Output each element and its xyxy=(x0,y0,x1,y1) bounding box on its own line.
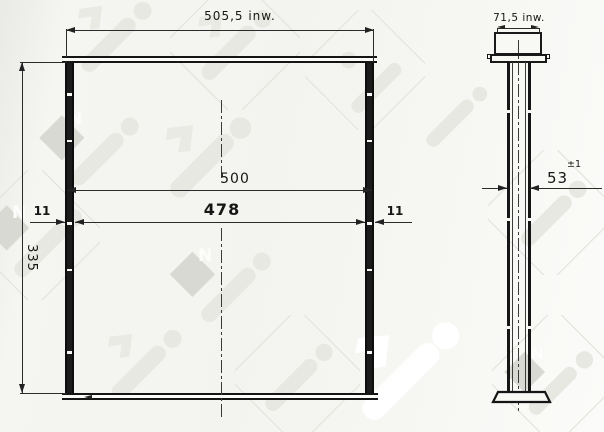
dimension-arrow xyxy=(530,185,539,191)
side-core-inner-line xyxy=(512,62,513,392)
front-right-side-plate xyxy=(365,57,374,400)
side-core-inner-line xyxy=(525,62,526,392)
svg-text:N: N xyxy=(530,344,544,363)
extension-line xyxy=(66,29,67,57)
dimension-arrow xyxy=(356,219,365,225)
nrf-watermark-tile xyxy=(395,55,515,175)
extension-line xyxy=(20,393,67,394)
dimension-label-53: 53 xyxy=(547,169,568,187)
front-bottom-header-plate xyxy=(62,393,378,400)
extension-line xyxy=(539,28,540,34)
nrf-watermark-tile xyxy=(330,295,490,432)
dimension-arrow xyxy=(363,187,372,193)
dimension-arrow xyxy=(66,27,75,33)
nrf-watermark-tile xyxy=(488,150,604,275)
dimension-label-top-width: 505,5 inw. xyxy=(195,9,285,23)
dimension-label-11-right: 11 xyxy=(383,204,407,218)
dimension-arrow xyxy=(75,219,84,225)
dimension-line-top-width xyxy=(66,30,374,31)
dimension-arrow xyxy=(19,62,25,71)
extension-line xyxy=(20,62,67,63)
svg-text:N: N xyxy=(198,246,212,266)
dimension-label-478: 478 xyxy=(192,200,252,219)
dimension-line-500 xyxy=(67,190,372,191)
side-bottom-plate xyxy=(489,389,555,407)
nrf-watermark-tile xyxy=(80,300,210,430)
dimension-arrow xyxy=(19,384,25,393)
side-core-outer-line xyxy=(528,62,531,392)
dimension-line-478 xyxy=(75,222,365,223)
leader-arrow xyxy=(84,395,92,399)
nrf-watermark-tile: N xyxy=(160,215,290,345)
extension-line xyxy=(373,29,374,62)
dimension-label-335: 335 xyxy=(23,238,39,278)
dimension-line-53 xyxy=(530,188,602,189)
dimension-label-500: 500 xyxy=(205,171,265,187)
dimension-arrow xyxy=(497,25,505,29)
front-top-header-plate xyxy=(62,56,377,63)
dimension-arrow xyxy=(56,219,65,225)
dimension-arrow xyxy=(531,25,539,29)
dimension-label-53-tolerance: ±1 xyxy=(567,159,581,170)
front-left-side-plate xyxy=(65,57,74,400)
dimension-arrow xyxy=(365,27,374,33)
side-center-line xyxy=(518,40,519,414)
dimension-label-11-left: 11 xyxy=(30,204,54,218)
front-center-line xyxy=(221,100,222,178)
dimension-arrow xyxy=(67,187,76,193)
dimension-label-71: 71,5 inw. xyxy=(490,12,548,24)
svg-text:N: N xyxy=(12,203,26,223)
nrf-watermark-tile xyxy=(235,315,360,432)
side-core-outer-line xyxy=(507,62,510,392)
front-center-line xyxy=(221,228,222,417)
technical-drawing-canvas: N N N N 505,5 inw. 500 xyxy=(0,0,604,432)
dimension-arrow xyxy=(375,219,384,225)
dimension-arrow xyxy=(498,185,507,191)
dimension-line-335 xyxy=(22,62,23,393)
